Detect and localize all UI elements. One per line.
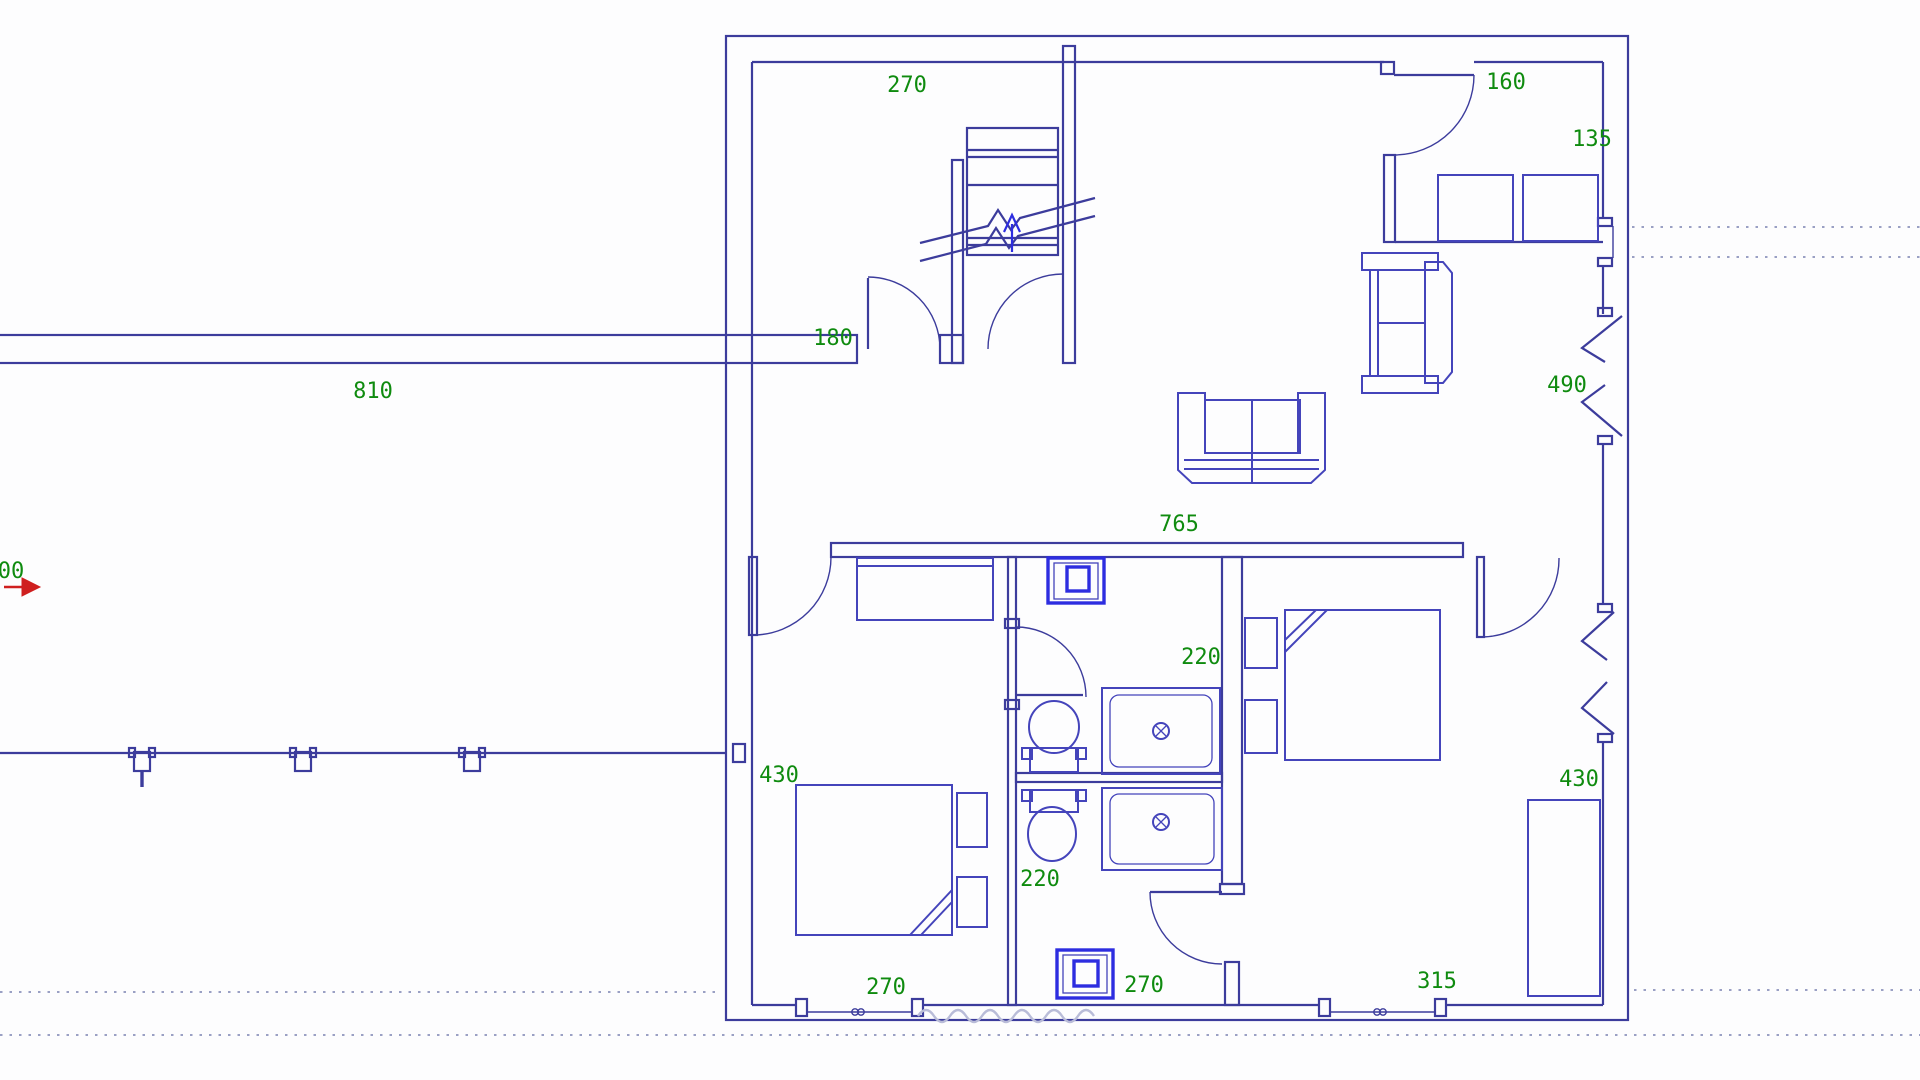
dim-kitchen-right: 135: [1572, 127, 1612, 152]
kitchen-wall: [1384, 155, 1395, 242]
dim-living-width: 765: [1159, 512, 1199, 537]
bathtub-upper: [1102, 688, 1220, 774]
nightstand: [957, 877, 987, 927]
bathtub-lower: [1102, 788, 1222, 870]
bath-wall-cap: [1220, 884, 1244, 894]
dim-kitchen-door: 160: [1486, 70, 1526, 95]
staircase: [920, 128, 1095, 261]
wardrobe: [1528, 800, 1600, 996]
dim-terrace: 810: [353, 379, 393, 404]
stair-break-line: [920, 198, 1095, 243]
datum-label: 00: [0, 559, 24, 584]
terrace-wall: [0, 335, 857, 363]
shower-lower: [1057, 950, 1113, 998]
dim-bedroom-right: 430: [1559, 767, 1599, 792]
dim-top-room: 270: [887, 73, 927, 98]
bath-wall-right: [1222, 557, 1242, 884]
terrace-post-3: [459, 748, 485, 771]
nightstand: [1245, 618, 1277, 668]
bath-wall-left: [1008, 557, 1016, 1005]
door-kitchen: [1381, 62, 1474, 155]
nightstand: [957, 793, 987, 847]
window-bedroom-right: [1582, 604, 1614, 742]
bed-left: [796, 785, 987, 935]
toilet-upper: [1022, 701, 1086, 772]
middle-wall: [831, 543, 1463, 557]
sofa-main: [1178, 393, 1325, 483]
interior-walls: [831, 46, 1603, 1005]
bed-right: [1245, 610, 1440, 760]
bath-wall-jamb: [1225, 962, 1239, 1005]
door-hall: [868, 277, 940, 349]
reference-lines: [0, 227, 1920, 1035]
threshold-openings: [796, 999, 1446, 1016]
shower-upper: [1048, 558, 1104, 603]
dim-opening-right: 315: [1417, 969, 1457, 994]
stair-wall-left: [952, 160, 963, 363]
dim-bath-upper: 220: [1181, 645, 1221, 670]
furniture: [796, 175, 1600, 996]
sofa-side: [1362, 253, 1452, 393]
door-stairhall: [988, 274, 1063, 349]
door-bath-upper: [1005, 619, 1086, 709]
terrace-post-2: [290, 748, 316, 771]
nightstand: [1245, 700, 1277, 753]
floor-plan-page: 00 270 160 135 180 810 490 765 220 430 2…: [0, 0, 1920, 1080]
dim-opening-left: 270: [866, 975, 906, 1000]
threshold-left: [796, 999, 923, 1016]
dim-bedroom-left: 430: [759, 763, 799, 788]
door-bedroom-left: [749, 557, 831, 635]
dim-hall-door: 180: [813, 326, 853, 351]
door-bedroom-right: [1477, 557, 1559, 637]
terrace: [0, 335, 963, 787]
datum-marker: 00: [0, 559, 40, 596]
window-living: [1582, 308, 1622, 444]
dim-opening-center: 270: [1124, 973, 1164, 998]
terrace-junction: [733, 744, 745, 762]
kitchen-units: [1438, 175, 1598, 241]
floor-plan-canvas: 00 270 160 135 180 810 490 765 220 430 2…: [0, 0, 1920, 1080]
threshold-right: [1319, 999, 1446, 1016]
door-bath-lower: [1150, 892, 1222, 964]
toilet-lower: [1022, 790, 1086, 861]
dim-window-right: 490: [1547, 373, 1587, 398]
datum-arrow-icon: [22, 578, 40, 596]
dimension-labels: 270 160 135 180 810 490 765 220 430 220 …: [353, 70, 1612, 1000]
bathroom-fixtures: [1022, 558, 1222, 998]
desk-bedroom-left: [857, 558, 993, 620]
dim-bath-lower: 220: [1020, 867, 1060, 892]
